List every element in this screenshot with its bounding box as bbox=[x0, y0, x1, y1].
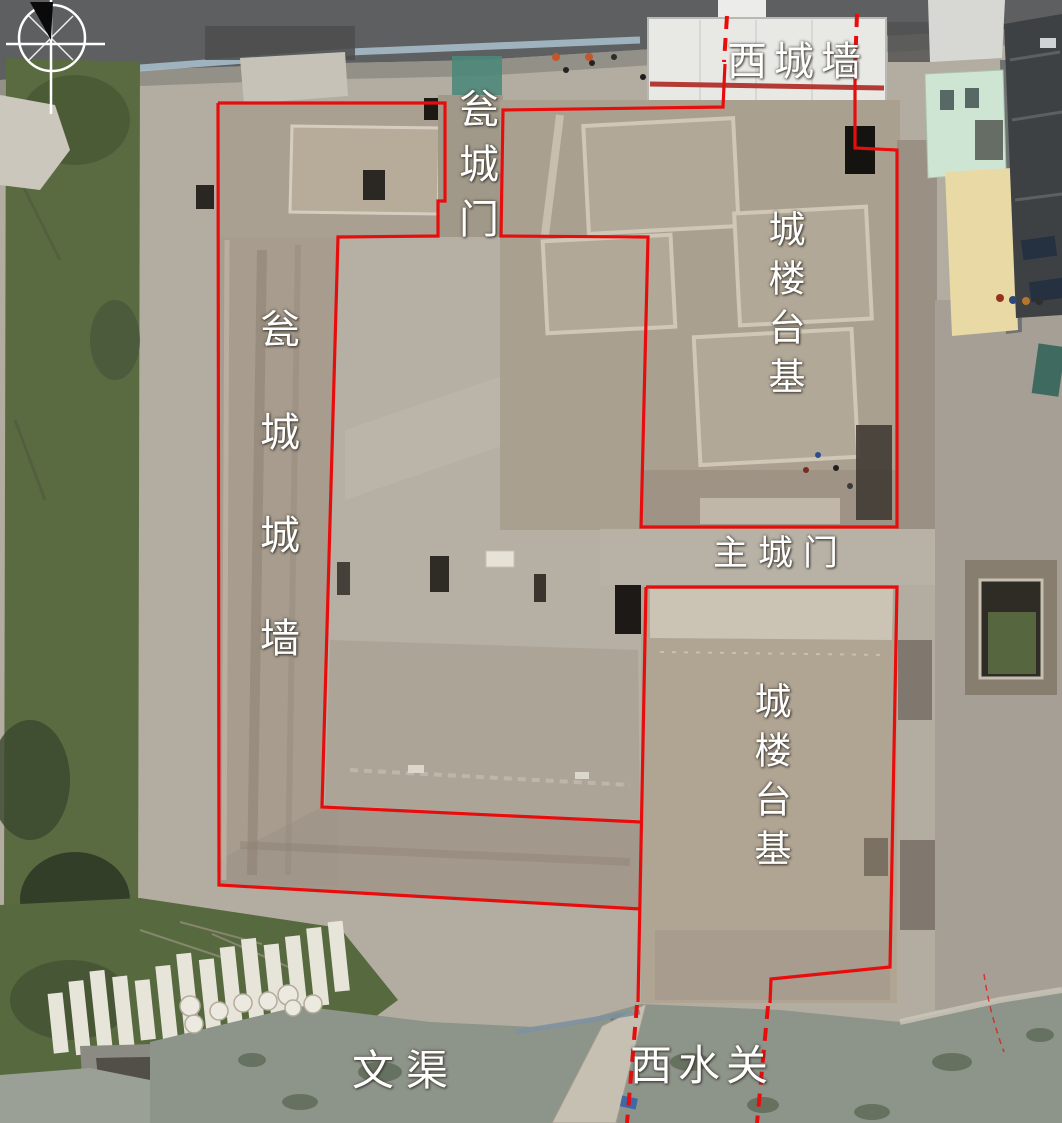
excavation-pit bbox=[363, 170, 385, 200]
label-barbican-gate: 瓮城门 bbox=[455, 88, 495, 253]
aerial-site-figure: 西城墙 瓮城门 城楼台基 瓮城城墙 主城门 城楼台基 文渠 西水关 bbox=[0, 0, 1062, 1123]
baulk-wall bbox=[650, 589, 893, 640]
excavation-trench bbox=[856, 425, 892, 520]
label-west-water-gate: 西水关 bbox=[630, 1046, 774, 1088]
excavation-unit bbox=[734, 207, 872, 326]
label-west-city-wall: 西城墙 bbox=[727, 42, 868, 82]
roadside-clutter bbox=[888, 22, 932, 62]
stone-pile bbox=[240, 52, 348, 104]
excavation-pit bbox=[430, 556, 449, 592]
excavation-unit bbox=[583, 118, 738, 234]
excavation-unit bbox=[543, 235, 676, 334]
excavation-pit bbox=[534, 574, 546, 602]
buildings-area bbox=[925, 0, 1062, 1010]
walled-pit bbox=[965, 560, 1057, 695]
label-barbican-wall: 瓮城城墙 bbox=[256, 308, 296, 720]
excavation-pit bbox=[864, 838, 888, 876]
label-gate-tower-platform-south: 城楼台基 bbox=[750, 682, 787, 878]
white-roof bbox=[928, 0, 1005, 62]
excavation-pit bbox=[337, 562, 350, 595]
label-wen-canal: 文渠 bbox=[352, 1051, 460, 1093]
stone-slabs bbox=[486, 551, 514, 567]
label-main-city-gate: 主城门 bbox=[713, 536, 848, 571]
excavation-pit bbox=[196, 185, 214, 209]
cream-building bbox=[945, 168, 1018, 336]
grass-area bbox=[0, 58, 140, 985]
gate-tower-platform-north-area bbox=[500, 100, 937, 530]
label-gate-tower-platform-north: 城楼台基 bbox=[764, 210, 801, 406]
aerial-photo-canvas bbox=[0, 0, 1062, 1123]
